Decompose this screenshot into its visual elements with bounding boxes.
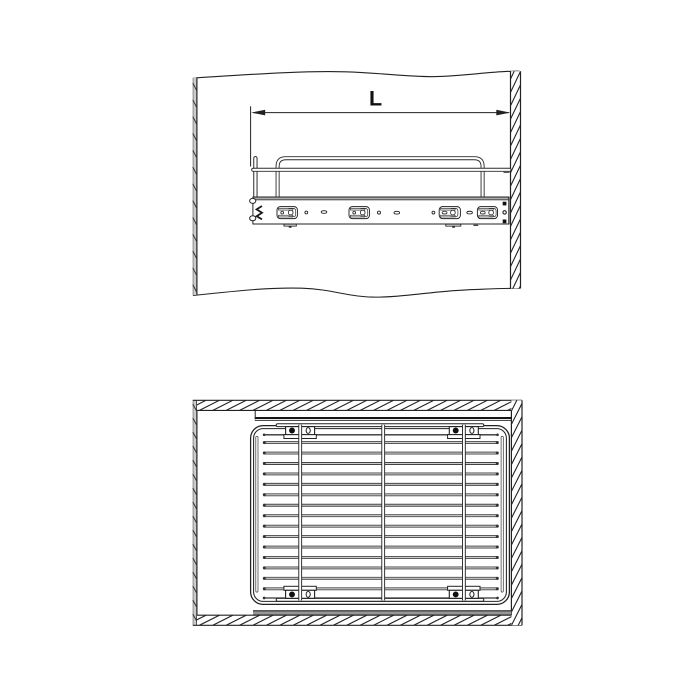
svg-text:L: L <box>369 86 382 110</box>
